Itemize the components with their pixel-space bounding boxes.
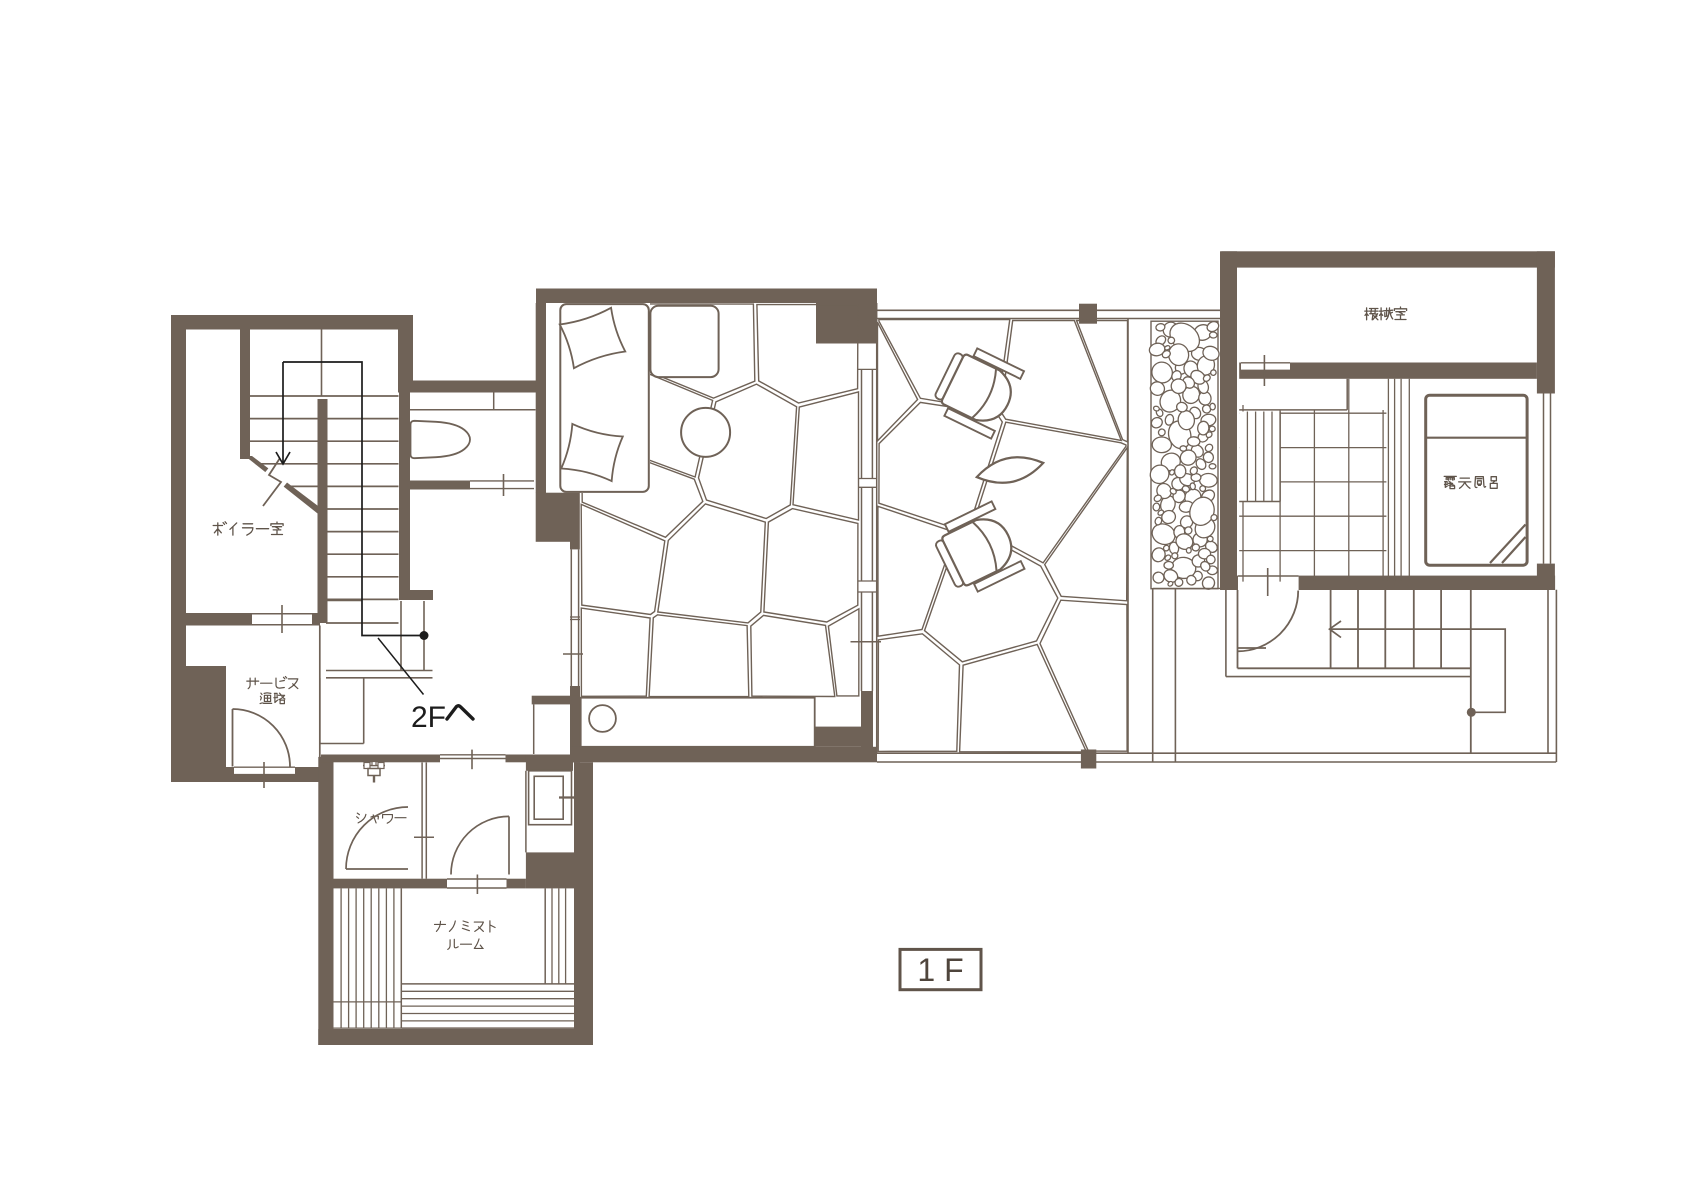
svg-text:2F: 2F (411, 701, 446, 734)
svg-text:1 F: 1 F (917, 952, 963, 988)
